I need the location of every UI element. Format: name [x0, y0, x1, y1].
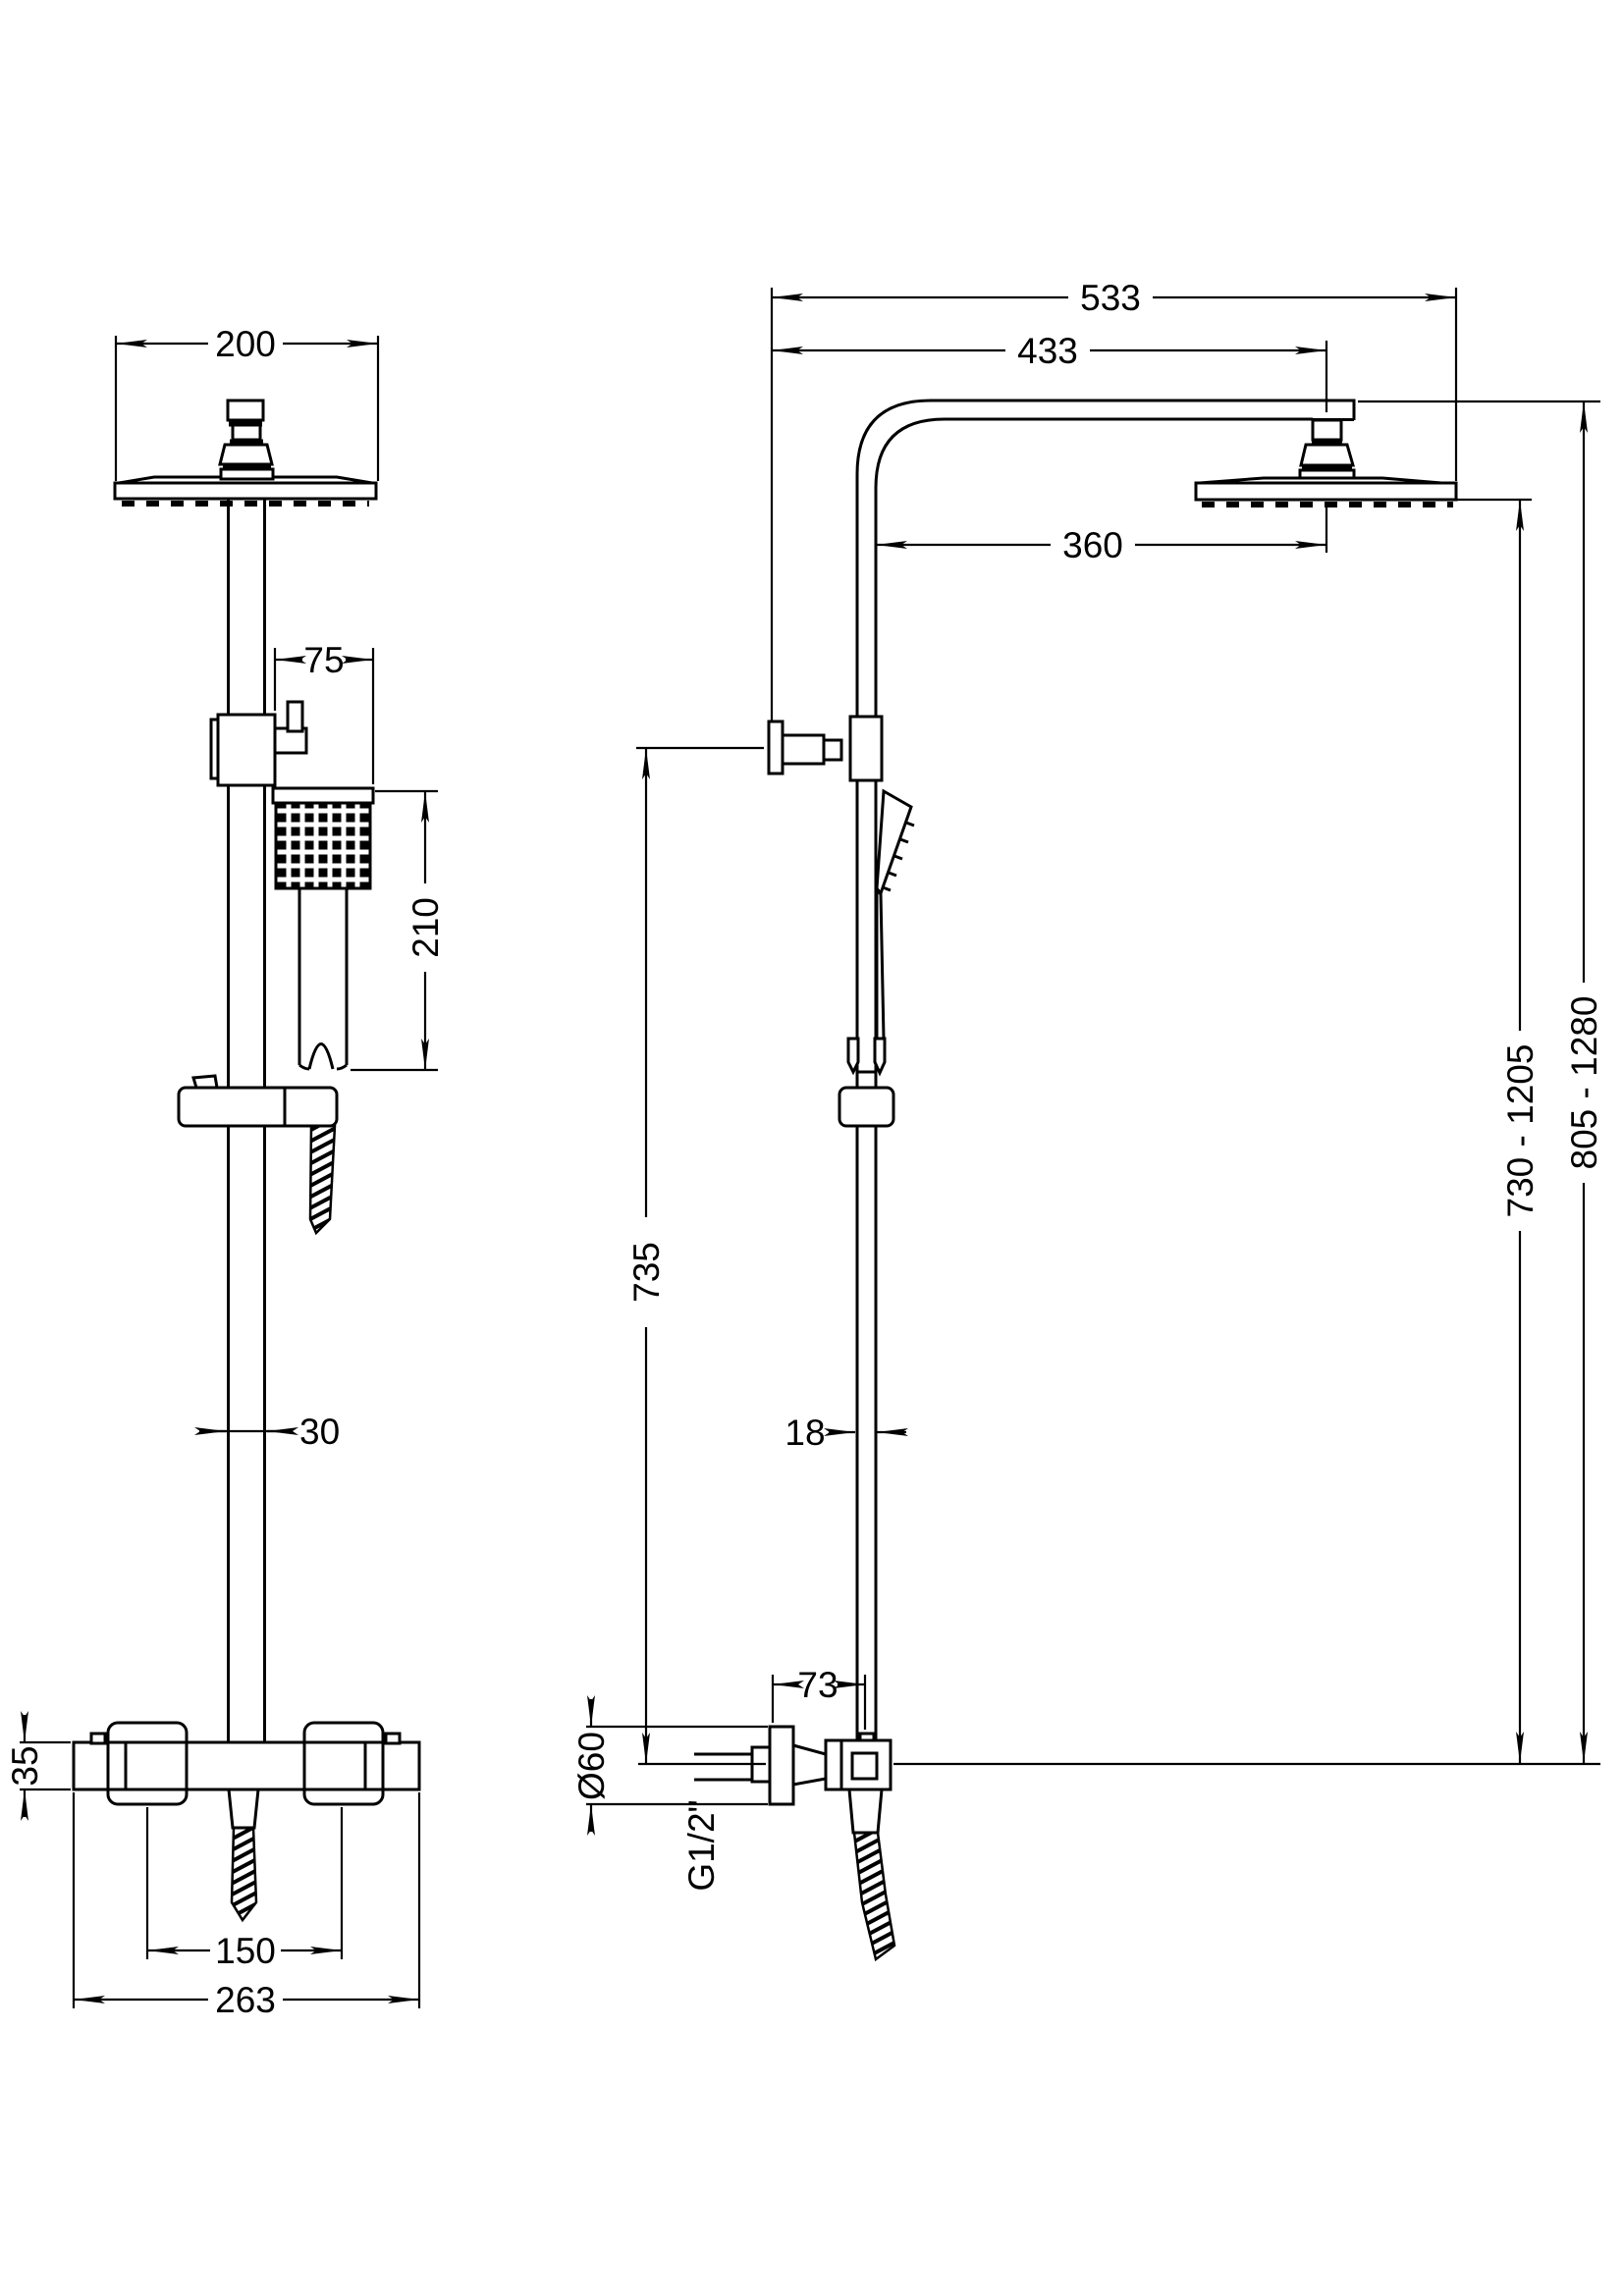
front-handset-hose	[310, 1126, 335, 1233]
label-inlet-connection: G1/2"	[681, 1799, 722, 1891]
shower-system-dimension-drawing: 200 75 210 30 35	[0, 0, 1623, 2296]
dim-handset-length-label: 210	[406, 897, 446, 958]
dim-head-projection-label: 360	[1062, 525, 1123, 565]
dim-front-valve-height: 35	[5, 1715, 71, 1817]
dim-side-head-height-range: 730 - 1205	[1456, 500, 1541, 1763]
dim-side-arm-height-range: 805 - 1280	[1358, 401, 1604, 1763]
front-slider-bracket	[179, 1076, 337, 1233]
dim-head-width-label: 200	[215, 324, 276, 364]
dim-riser-depth-label: 18	[784, 1413, 825, 1453]
side-view: 533 433 360 735 18	[571, 278, 1604, 1959]
dim-arm-projection-label: 433	[1017, 331, 1078, 371]
dim-side-wall-to-riser: 73	[773, 1665, 865, 1730]
dim-arm-height-range-label: 805 - 1280	[1564, 996, 1604, 1170]
dim-handset-offset-label: 75	[303, 640, 344, 680]
dim-side-riser-depth: 18	[784, 1413, 906, 1453]
side-mixer-valve	[694, 1727, 894, 1959]
front-view: 200 75 210 30 35	[5, 324, 446, 2020]
dim-side-bracket-drop: 735	[626, 748, 764, 1764]
dim-wall-to-riser-label: 73	[797, 1665, 838, 1705]
side-overhead-shower-head	[1196, 420, 1456, 505]
dim-side-head-projection: 360	[876, 506, 1326, 565]
dim-bracket-drop-label: 735	[626, 1242, 667, 1303]
dim-side-escutcheon-diameter: Ø60	[571, 1699, 768, 1832]
dim-head-height-range-label: 730 - 1205	[1500, 1044, 1541, 1218]
front-outlet-hose	[232, 1828, 256, 1920]
dim-front-riser-diameter: 30	[199, 1412, 340, 1452]
front-overhead-shower-head	[115, 400, 376, 504]
technical-drawing-page: 200 75 210 30 35	[0, 0, 1623, 2296]
dim-overall-projection-label: 533	[1080, 278, 1141, 318]
front-wall-bracket	[211, 702, 306, 785]
dim-escutcheon-diameter-label: Ø60	[571, 1732, 612, 1800]
front-hand-shower	[273, 788, 373, 1069]
dim-inlet-centres-label: 150	[215, 1931, 276, 1971]
front-mixer-valve	[74, 1723, 419, 1920]
dim-valve-height-label: 35	[5, 1745, 45, 1786]
dim-side-overall-projection: 533	[772, 278, 1456, 481]
side-outlet-hose	[854, 1833, 894, 1959]
side-wall-bracket	[769, 717, 882, 780]
dim-valve-width-label: 263	[215, 1980, 276, 2020]
dim-riser-diameter-label: 30	[299, 1412, 340, 1452]
